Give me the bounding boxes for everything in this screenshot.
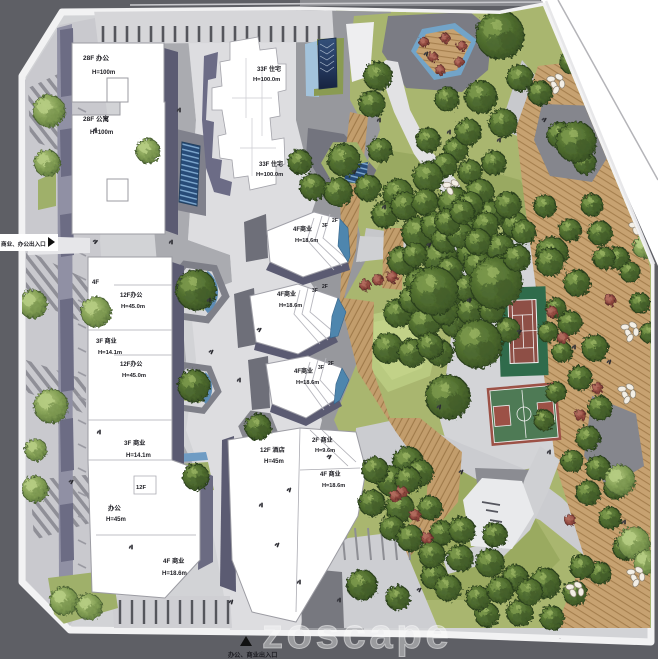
svg-text:4F商业: 4F商业 xyxy=(293,225,312,233)
svg-text:H=18.6m: H=18.6m xyxy=(162,571,187,577)
svg-text:H=14.1m: H=14.1m xyxy=(126,453,151,459)
svg-text:12F办公: 12F办公 xyxy=(120,360,142,368)
svg-text:3F 商业: 3F 商业 xyxy=(124,439,145,447)
svg-text:H=100.0m: H=100.0m xyxy=(256,172,283,178)
svg-text:办公: 办公 xyxy=(108,503,121,512)
svg-text:33F 住宅: 33F 住宅 xyxy=(257,65,281,73)
svg-text:H=100.0m: H=100.0m xyxy=(253,77,280,83)
svg-text:4F 商业: 4F 商业 xyxy=(320,470,341,478)
svg-text:H=100m: H=100m xyxy=(92,70,115,76)
svg-text:12F 酒店: 12F 酒店 xyxy=(260,446,285,454)
svg-text:H=18.6m: H=18.6m xyxy=(295,238,318,244)
svg-text:33F 住宅: 33F 住宅 xyxy=(259,160,283,168)
svg-text:12F: 12F xyxy=(136,485,146,491)
svg-text:H=45.0m: H=45.0m xyxy=(121,304,145,310)
svg-text:4F商业: 4F商业 xyxy=(294,367,313,375)
svg-text:3F: 3F xyxy=(318,365,324,371)
svg-text:3F 商业: 3F 商业 xyxy=(96,337,117,345)
svg-text:H=18.6m: H=18.6m xyxy=(296,380,319,386)
svg-text:H=45.0m: H=45.0m xyxy=(122,373,146,379)
svg-text:H=45m: H=45m xyxy=(106,517,126,523)
svg-text:H=18.6m: H=18.6m xyxy=(279,303,302,309)
svg-text:28F 办公: 28F 办公 xyxy=(83,53,110,62)
svg-text:4F 商业: 4F 商业 xyxy=(163,557,184,565)
svg-text:H=9.6m: H=9.6m xyxy=(315,448,335,454)
svg-text:4F商业: 4F商业 xyxy=(277,290,296,298)
svg-text:2F: 2F xyxy=(332,218,338,224)
svg-text:2F 商业: 2F 商业 xyxy=(312,436,333,444)
svg-text:28F 公寓: 28F 公寓 xyxy=(83,114,110,123)
svg-text:2F: 2F xyxy=(328,361,334,367)
svg-text:4F: 4F xyxy=(92,280,99,286)
svg-text:12F办公: 12F办公 xyxy=(120,291,142,299)
svg-text:H=18.6m: H=18.6m xyxy=(322,483,345,489)
svg-text:3F: 3F xyxy=(312,288,318,294)
svg-text:zoscape: zoscape xyxy=(262,610,452,657)
svg-text:商业、办公出入口: 商业、办公出入口 xyxy=(1,240,46,248)
svg-text:2F: 2F xyxy=(322,284,328,290)
svg-text:3F: 3F xyxy=(322,223,328,229)
svg-text:H=14.1m: H=14.1m xyxy=(98,350,122,356)
svg-text:H=45m: H=45m xyxy=(264,459,284,465)
